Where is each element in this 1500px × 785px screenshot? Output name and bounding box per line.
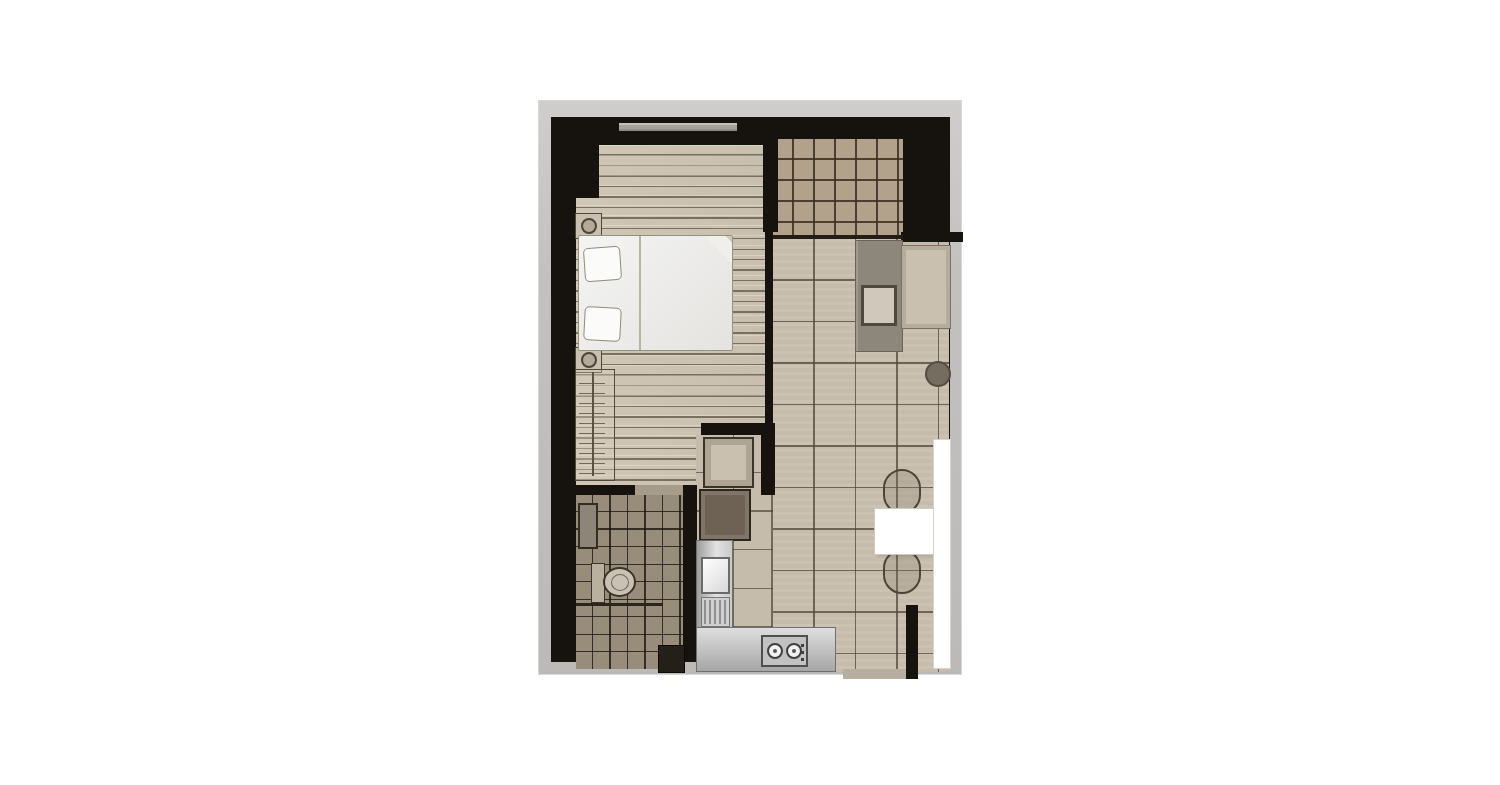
drainboard [701, 597, 730, 627]
wall-bedroom-east-jog [761, 423, 775, 495]
stove-knobs [801, 644, 804, 662]
utility-box [658, 645, 685, 673]
dining-chair-top [883, 469, 921, 514]
wall-bedroom-balcony [763, 117, 778, 232]
kitchen-sink [701, 557, 730, 594]
bed-sheet-line [639, 236, 641, 350]
stove-burner [767, 643, 783, 659]
pillow [583, 306, 622, 342]
wall-entry-stub [906, 605, 918, 679]
dining-chair-bottom [883, 549, 921, 594]
floor-plan [538, 100, 962, 675]
double-bed [578, 235, 733, 351]
shower-partition [576, 603, 663, 606]
round-side-table [925, 361, 951, 387]
wardrobe [575, 369, 615, 481]
refrigerator [699, 489, 751, 541]
balcony-sliding-door [773, 235, 903, 239]
duvet-fold-corner [704, 236, 732, 264]
floor-plan-walls-layer [551, 117, 950, 662]
counter-ledge [933, 439, 951, 669]
entry-cabinet [703, 437, 754, 488]
two-burner-stove [761, 635, 808, 667]
bathroom-vanity [578, 503, 598, 549]
page-canvas [0, 0, 1500, 785]
pillow [583, 246, 622, 282]
lounge-rug [901, 245, 951, 329]
structural-column [565, 120, 599, 198]
bathroom-door-opening [635, 485, 685, 495]
wall-balcony-south-segment [901, 232, 963, 242]
sofa-side-table [861, 285, 897, 326]
balcony-floor [773, 139, 903, 235]
dining-table [875, 509, 935, 554]
wall-bathroom-east [683, 485, 697, 662]
stove-burner [786, 643, 802, 659]
bedroom-window [619, 123, 737, 131]
entry-door-opening [843, 669, 910, 679]
toilet-bowl [603, 567, 636, 597]
